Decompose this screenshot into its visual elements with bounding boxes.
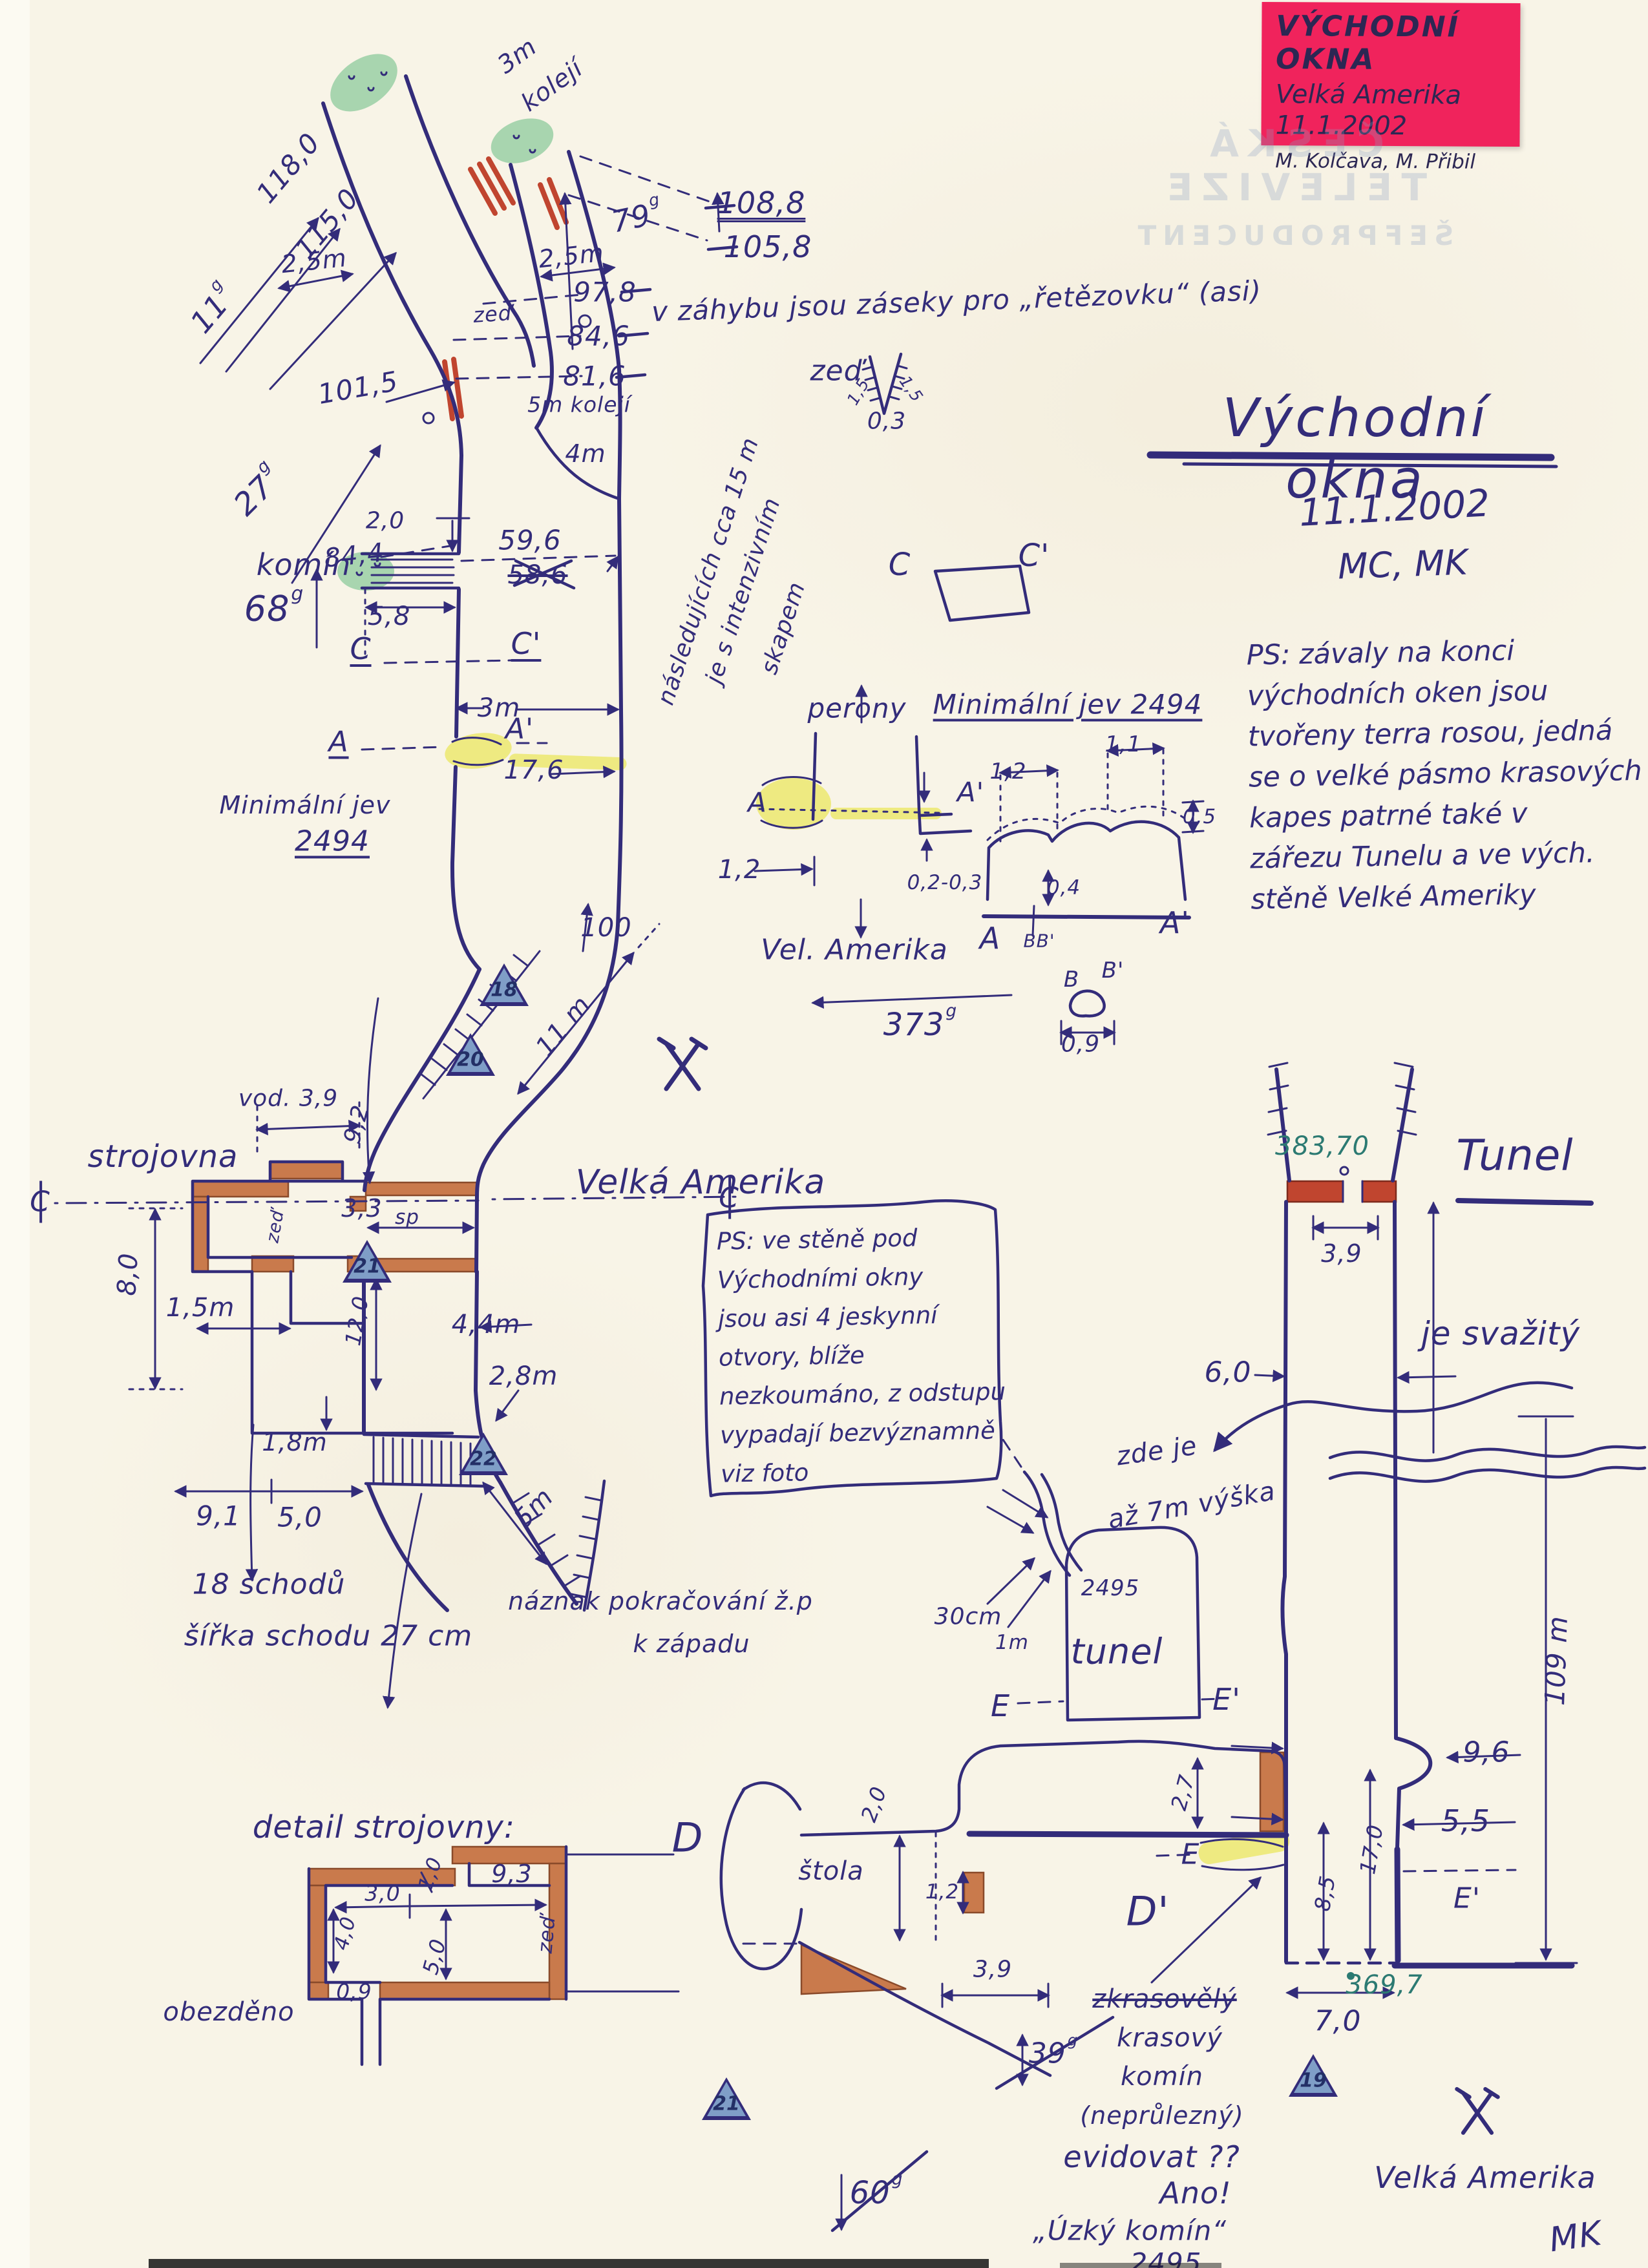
sketch-label: krasový — [1117, 2023, 1223, 2053]
sketch-label: 9,1 — [196, 1500, 241, 1532]
survey-point-number: 20 — [457, 1048, 484, 1071]
sketch-label: 5,5 — [1441, 1803, 1490, 1838]
note-title: VÝCHODNÍ OKNA — [1276, 10, 1506, 77]
sketch-label: vod. 3,9 — [238, 1086, 338, 1112]
sketch-label: 4m — [565, 439, 606, 468]
signature: MK — [1547, 2214, 1605, 2260]
handwritten-line: otvory, blíže — [719, 1334, 997, 1377]
handwritten-line: zářezu Tunelu a ve vých. — [1250, 832, 1648, 879]
survey-point-number: 21 — [354, 1255, 381, 1277]
sketch-label: 60g — [850, 2175, 903, 2211]
handwritten-line: viz foto — [721, 1450, 999, 1493]
sketch-label: Vel. Amerika — [761, 934, 948, 967]
sketch-label: 105,8 — [724, 229, 812, 264]
vegetation-blobs — [320, 42, 560, 591]
sketch-label: C' — [511, 626, 542, 661]
sketch-label: Minimální jev — [220, 791, 391, 819]
sketch-label: 0,9 — [336, 1979, 372, 2004]
sketch-label: 2,0 — [366, 508, 405, 534]
sketch-label: sp — [395, 1206, 419, 1229]
sketch-label: 58,6 — [507, 560, 567, 590]
watermark-line2: ŠEFPRODUCENT — [1073, 220, 1512, 251]
sketch-label: náznak pokračování ž.p — [508, 1587, 813, 1615]
sketch-label: 100 — [580, 913, 631, 943]
handwritten-line: tvořeny terra rosou, jedná — [1247, 710, 1648, 758]
survey-point-triangle: 19 — [1289, 2054, 1338, 2097]
sketch-label: komín — [257, 547, 352, 582]
handwritten-line: PS: ve stěně pod — [716, 1217, 995, 1261]
sketch-label: C' — [1019, 538, 1050, 574]
scanned-survey-page: VÝCHODNÍ OKNA Velká Amerika 11.1.2002 M.… — [0, 0, 1648, 2268]
sketch-label: zeď — [534, 1915, 560, 1955]
sketch-label: E' — [1212, 1682, 1241, 1717]
sketch-label: Ano! — [1159, 2176, 1231, 2210]
sketch-label: 5m kolejí — [527, 392, 631, 417]
survey-point-triangle: 20 — [446, 1033, 495, 1076]
handwritten-line: se o velké pásmo krasových — [1248, 751, 1648, 799]
hammer-and-pick-icon — [650, 1034, 715, 1101]
sketch-label: (neprůlezný) — [1080, 2101, 1243, 2130]
sketch-label: obezděno — [163, 1997, 294, 2027]
sketch-label: 1,2 — [718, 855, 761, 885]
sketch-label: zeď — [472, 300, 512, 328]
scan-artifact — [149, 2259, 989, 2268]
sketch-label: zkrasovělý — [1092, 1984, 1237, 2014]
sketch-label: 1m — [995, 1631, 1029, 1654]
sketch-label: 1,2 — [925, 1880, 959, 1904]
sketch-label: „Úzký komín“ — [1033, 2215, 1227, 2247]
sketch-label: 30cm — [935, 1604, 1002, 1630]
sketch-label: 9,3 — [491, 1860, 532, 1888]
sketch-label: štola — [798, 1856, 864, 1886]
sketch-label: 109 m — [1539, 1615, 1574, 1706]
sketch-label: k západu — [633, 1630, 750, 1658]
sketch-label: 383,70 — [1275, 1131, 1369, 1161]
ps-box-text: PS: ve stěně podVýchodními oknyjsou asi … — [716, 1217, 998, 1493]
sketch-label: 0,9 — [1061, 1031, 1100, 1058]
note-location: Velká Amerika — [1276, 79, 1506, 110]
passage-walls — [193, 76, 1645, 2075]
sketch-label: 1,5m — [166, 1293, 235, 1323]
survey-point-triangle: 21 — [702, 2077, 751, 2120]
page-authors: MC, MK — [1337, 542, 1468, 587]
sketch-label: B — [1064, 967, 1079, 992]
sketch-label: Velká Amerika — [576, 1163, 826, 1202]
survey-sketch — [0, 0, 1648, 2268]
handwritten-line: vypadají bezvýznamně — [720, 1411, 998, 1454]
sketch-label: 68g — [244, 589, 304, 629]
sketch-label: 3,9 — [1321, 1239, 1362, 1268]
sketch-label: 1,1 — [1104, 731, 1141, 757]
handwritten-line: nezkoumáno, z odstupu — [719, 1372, 998, 1416]
sketch-label: komín — [1121, 2062, 1203, 2092]
sketch-label: 369,7 — [1346, 1970, 1423, 2000]
sketch-label: 0,3 — [867, 408, 906, 435]
sketch-label: C — [889, 547, 911, 583]
sketch-label: perony — [808, 693, 907, 724]
ps-paragraph: PS: závaly na koncivýchodních oken jsout… — [1246, 629, 1648, 921]
handwritten-line: stěně Velké Ameriky — [1251, 872, 1648, 920]
sketch-label: 9,6 — [1463, 1736, 1510, 1769]
handwritten-line: PS: závaly na konci — [1246, 629, 1648, 677]
sketch-label: tunel — [1071, 1632, 1163, 1672]
tunel-title: Tunel — [1456, 1131, 1573, 1181]
sketch-label: B' — [1102, 958, 1125, 983]
sketch-label: E — [1181, 1838, 1200, 1871]
survey-point-number: 21 — [713, 2092, 740, 2115]
sketch-label: 2494 — [295, 825, 370, 858]
sketch-label: 3,3 — [341, 1194, 382, 1223]
survey-point-number: 22 — [470, 1447, 497, 1470]
sketch-label: 84,6 — [567, 320, 630, 352]
scan-artifact — [1060, 2263, 1221, 2268]
sketch-label: 0,5 — [1183, 805, 1216, 828]
handwritten-line: jsou asi 4 jeskynní — [717, 1295, 996, 1338]
sketch-label: Minimální jev 2494 — [933, 689, 1203, 720]
sketch-label: 5,0 — [277, 1502, 322, 1533]
sketch-label: 3,0 — [364, 1881, 400, 1906]
sketch-label: evidovat ?? — [1063, 2139, 1240, 2174]
survey-point-number: 18 — [491, 978, 518, 1001]
centerline-symbol: C — [719, 1182, 739, 1215]
sketch-label: 5,8 — [368, 602, 411, 631]
sketch-label: BB' — [1023, 930, 1055, 952]
hammer-and-pick-icon — [1449, 2084, 1506, 2144]
sketch-label: E — [991, 1688, 1010, 1723]
sketch-label: A' — [957, 777, 984, 808]
sketch-label: D — [672, 1814, 704, 1862]
sketch-label: A — [748, 787, 767, 819]
sketch-label: E' — [1453, 1882, 1481, 1915]
handwritten-line: Východními okny — [717, 1256, 995, 1299]
handwritten-line: kapes patrné také v — [1249, 791, 1648, 839]
sketch-label: D' — [1126, 1888, 1170, 1935]
sketch-label: 2495 — [1081, 1575, 1140, 1601]
sketch-label: šířka schodu 27 cm — [184, 1620, 472, 1653]
sketch-label: 39g — [1029, 2037, 1078, 2070]
sketch-label: A — [980, 921, 1000, 956]
sketch-label: 97,8 — [573, 277, 637, 308]
sketch-label: A' — [1160, 905, 1190, 940]
sketch-label: 81,6 — [563, 361, 626, 392]
sketch-label: 7,0 — [1315, 2005, 1362, 2038]
sketch-label: 1,8m — [262, 1428, 327, 1456]
sketch-label: 4,4m — [452, 1310, 521, 1339]
sketch-label: 3,9 — [973, 1957, 1012, 1983]
sketch-label: 59,6 — [498, 525, 562, 556]
survey-point-triangle: 18 — [480, 963, 529, 1006]
survey-point-number: 19 — [1300, 2069, 1327, 2092]
sketch-label: 2,8m — [489, 1361, 558, 1391]
sketch-label: 0,4 — [1047, 876, 1081, 899]
watermark: ČESKÁ TELEVIZE ŠEFPRODUCENT — [1073, 121, 1512, 251]
watermark-line1: ČESKÁ TELEVIZE — [1073, 121, 1512, 209]
survey-point-triangle: 22 — [459, 1433, 508, 1475]
handwritten-line: východních oken jsou — [1247, 669, 1648, 717]
sketch-label: detail strojovny: — [253, 1809, 515, 1845]
sketch-label: 18 schodů — [193, 1568, 346, 1601]
sketch-label: C — [350, 631, 371, 666]
sketch-label: 17,6 — [503, 755, 564, 785]
sketch-label: 373g — [883, 1007, 957, 1043]
sketch-label: A' — [505, 713, 534, 746]
sketch-label: 0,2-0,3 — [907, 871, 983, 894]
centerline-symbol: C — [30, 1186, 50, 1219]
sketch-label: je svažitý — [1421, 1315, 1580, 1352]
sketch-label: strojovna — [88, 1139, 238, 1175]
sketch-label: 108,8 — [717, 185, 806, 220]
rails-marks — [445, 159, 566, 419]
sketch-label: Velká Amerika — [1374, 2160, 1596, 2195]
sketch-label: 1,2 — [989, 759, 1026, 784]
sketch-label: A — [328, 726, 348, 759]
survey-point-triangle: 21 — [343, 1240, 392, 1283]
sketch-label: 6,0 — [1205, 1356, 1252, 1389]
sketch-label: 8,0 — [112, 1252, 143, 1297]
